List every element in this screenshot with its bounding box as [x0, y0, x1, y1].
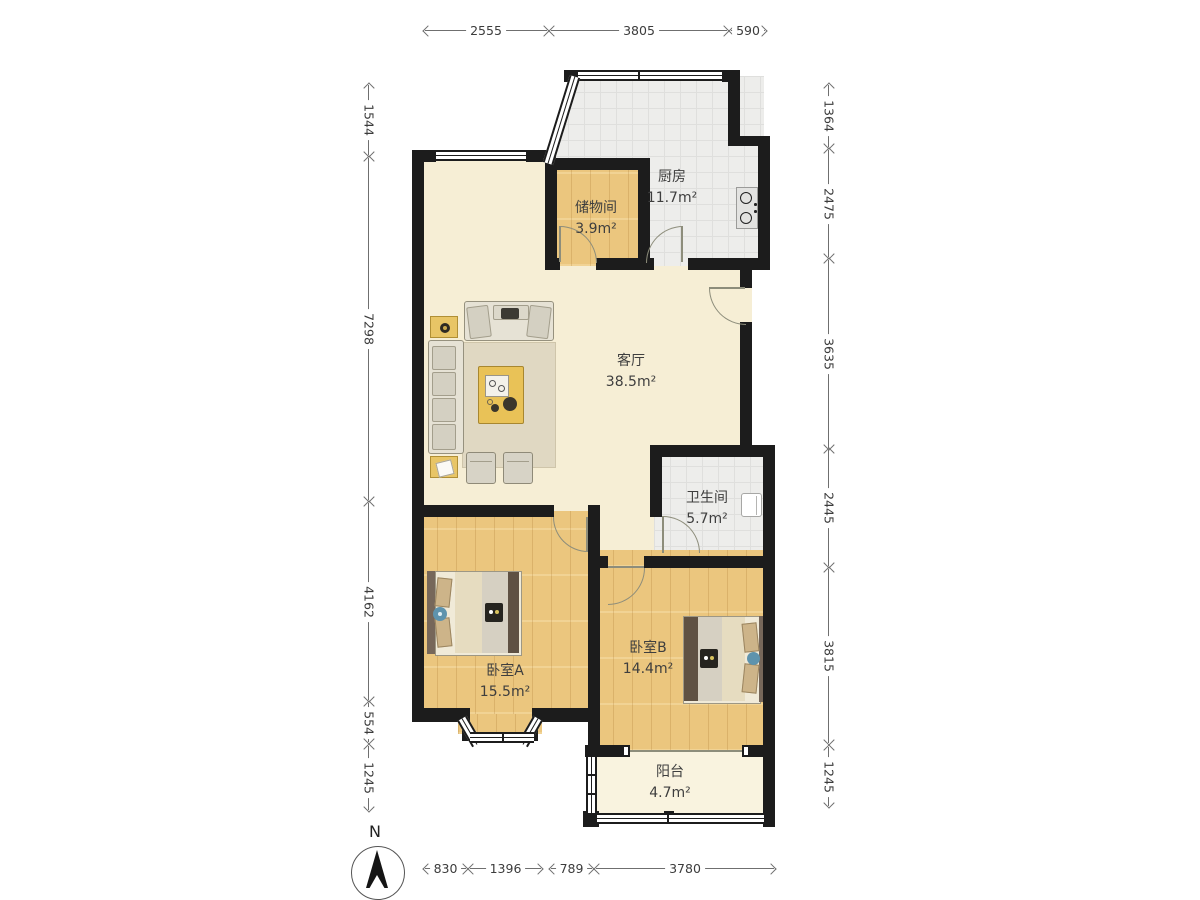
dim-left-2: 7298 [368, 158, 369, 500]
dim-right-4: 2445 [828, 450, 829, 566]
kitchen-door-leaf [681, 226, 683, 262]
bedroom-a-door-leaf [586, 517, 588, 551]
room-label-bedroom-a: 卧室A 15.5m² [445, 661, 565, 703]
blue-cushion [433, 607, 447, 621]
wall [644, 556, 660, 568]
ottoman-left [466, 452, 496, 484]
cup-icon [491, 404, 499, 412]
side-table-top [430, 316, 458, 338]
room-area: 5.7m² [647, 509, 767, 530]
room-name: 卫生间 [647, 488, 767, 509]
dim-bottom-4: 3780 [596, 868, 774, 869]
dim-left-1: 1544 [368, 85, 369, 155]
sofa-cushion-dark [501, 308, 519, 319]
north-label: N [369, 822, 381, 841]
pillow [435, 617, 453, 647]
dim-left-5: 1245 [368, 746, 369, 810]
wall [545, 258, 560, 270]
balcony-window-bottom [597, 813, 764, 824]
window-mullion [667, 813, 669, 824]
pillow [742, 663, 760, 693]
north-arrow-notch [369, 875, 385, 889]
wall [740, 322, 752, 450]
sofa-top [464, 301, 554, 341]
room-name: 卧室A [445, 661, 565, 682]
wall [650, 556, 775, 568]
room-label-storage: 储物间 3.9m² [536, 198, 656, 240]
wall [650, 445, 775, 457]
book-icon [435, 459, 454, 477]
floor-plan: 客厅 38.5m² 厨房 11.7m² 储物间 3.9m² 卫生间 5.7m² … [0, 0, 1200, 900]
dim-left-4: 554 [368, 703, 369, 742]
coffee-table [478, 366, 524, 424]
pillow [435, 577, 453, 607]
room-label-bedroom-b: 卧室B 14.4m² [588, 638, 708, 680]
dim-bottom-3: 789 [551, 868, 592, 869]
tray [485, 375, 509, 397]
dim-left-3: 4162 [368, 503, 369, 700]
dim-top-1: 2555 [425, 30, 547, 31]
bay-window-bottom [470, 732, 534, 743]
dim-top-3: 590 [731, 30, 765, 31]
wall [596, 258, 638, 270]
door-frame-notch [744, 747, 748, 755]
wall [412, 150, 436, 162]
window-mullion [586, 793, 597, 795]
bed-tray [485, 603, 503, 622]
room-name: 卧室B [588, 638, 708, 659]
room-area: 15.5m² [445, 682, 565, 703]
dim-right-6: 1245 [828, 747, 829, 806]
room-name: 客厅 [571, 351, 691, 372]
dim-right-2: 2475 [828, 150, 829, 257]
window-mullion [502, 732, 504, 743]
room-name: 储物间 [536, 198, 656, 219]
room-name: 阳台 [610, 762, 730, 783]
wall [412, 150, 424, 722]
stove [736, 187, 758, 229]
ottoman-right [503, 452, 533, 484]
dim-bottom-1: 830 [425, 868, 466, 869]
wall [758, 136, 770, 270]
pillow [742, 622, 760, 652]
room-label-balcony: 阳台 4.7m² [610, 762, 730, 804]
wall [412, 505, 554, 517]
dim-right-3: 3635 [828, 260, 829, 448]
dim-right-5: 3815 [828, 569, 829, 743]
living-room-window [436, 150, 526, 161]
dim-top-2: 3805 [551, 30, 727, 31]
bedroom-b-door-leaf [608, 566, 644, 568]
room-area: 14.4m² [588, 659, 708, 680]
room-label-bathroom: 卫生间 5.7m² [647, 488, 767, 530]
balcony-window-left [586, 757, 597, 813]
wall [740, 258, 752, 288]
room-area: 3.9m² [536, 219, 656, 240]
room-name: 厨房 [612, 167, 732, 188]
wall [728, 70, 740, 146]
wall [600, 556, 608, 568]
sofa-left [428, 340, 464, 454]
dim-bottom-2: 1396 [470, 868, 541, 869]
compass: N [345, 822, 411, 900]
burner-icon [740, 212, 752, 224]
entry-door-leaf [709, 287, 745, 289]
door-frame-notch [624, 747, 628, 755]
kitchen-window [578, 70, 722, 81]
teapot-icon [503, 397, 517, 411]
side-table-bottom [430, 456, 458, 478]
bed-a [427, 571, 520, 654]
wall [688, 258, 770, 270]
duvet [455, 572, 482, 653]
window-mullion [586, 774, 597, 776]
blue-cushion [747, 652, 760, 665]
dim-right-1: 1364 [828, 85, 829, 147]
room-label-living: 客厅 38.5m² [571, 351, 691, 393]
room-area: 38.5m² [571, 372, 691, 393]
room-area: 4.7m² [610, 783, 730, 804]
burner-icon [740, 192, 752, 204]
window-mullion [638, 70, 640, 81]
sliding-door-track [630, 750, 742, 752]
runner-dark [508, 572, 519, 653]
